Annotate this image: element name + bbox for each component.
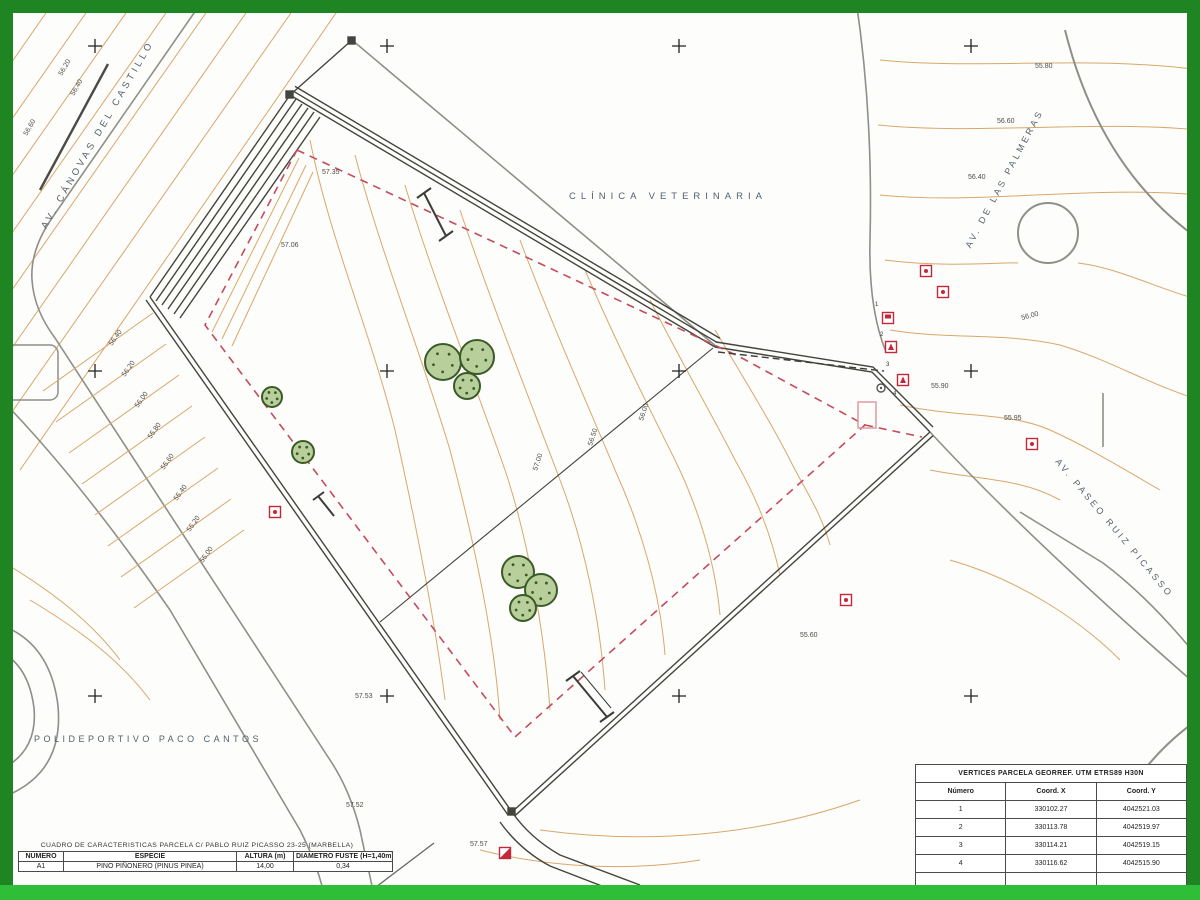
elevation-label: 57.06 bbox=[281, 242, 299, 249]
tree-texture-dot bbox=[467, 358, 470, 361]
tree bbox=[262, 387, 282, 407]
level-tick-label: 55.00 bbox=[199, 546, 215, 564]
grid-cross bbox=[964, 39, 978, 53]
table-header-cell: ESPECIE bbox=[64, 852, 237, 862]
parcel-walls-part bbox=[295, 86, 720, 338]
level-tick bbox=[108, 468, 218, 546]
dimension-marks bbox=[313, 188, 614, 722]
table-header-cell: Número bbox=[916, 783, 1006, 801]
level-tick-label: 55.20 bbox=[186, 515, 202, 533]
contour-lines-part bbox=[480, 850, 700, 867]
contour-lines-part bbox=[930, 470, 1060, 500]
tree-texture-dot bbox=[526, 601, 529, 604]
tree-canopy bbox=[425, 344, 461, 380]
level-tick-label: 55.40 bbox=[173, 484, 189, 502]
table-cell: 330113.78 bbox=[1006, 819, 1096, 837]
tree-texture-dot bbox=[512, 563, 515, 566]
table-cell: 330116.62 bbox=[1006, 855, 1096, 873]
tree-texture-dot bbox=[508, 573, 511, 576]
tree-texture-dot bbox=[470, 348, 473, 351]
contour-lines-part bbox=[1078, 263, 1200, 300]
elevation-label: 56.60 bbox=[23, 118, 38, 137]
green-bottom-strip bbox=[0, 885, 1200, 900]
level-tick-label: 55.80 bbox=[147, 422, 163, 440]
dot-symbol-icon bbox=[921, 266, 932, 277]
elevation-label: 55.90 bbox=[931, 383, 949, 390]
corner-marker bbox=[348, 37, 355, 44]
elevation-label: 57.52 bbox=[346, 802, 364, 809]
tree-texture-dot bbox=[481, 348, 484, 351]
vertex-number: 4 bbox=[893, 391, 897, 397]
tree-texture-dot bbox=[525, 574, 528, 577]
level-tick bbox=[82, 406, 192, 484]
table-cell: 1 bbox=[916, 801, 1006, 819]
contour-lines-part bbox=[0, 560, 120, 660]
level-tick-label: 56.40 bbox=[108, 329, 124, 347]
tree-texture-dot bbox=[470, 379, 473, 382]
elevation-label: 56.00 bbox=[1021, 311, 1040, 322]
roads-part bbox=[1020, 512, 1200, 660]
roads-part bbox=[32, 0, 375, 900]
parcel-walls-part bbox=[156, 99, 296, 301]
elevation-label: 57.53 bbox=[355, 693, 373, 700]
level-tick-label: 55.60 bbox=[160, 453, 176, 471]
elevation-label: 56.60 bbox=[997, 118, 1015, 125]
table-cell: 4 bbox=[916, 855, 1006, 873]
tree-texture-dot bbox=[432, 363, 435, 366]
elevation-label: 56.40 bbox=[70, 78, 85, 97]
tree-texture-dot bbox=[451, 364, 454, 367]
dot-symbol-icon-part bbox=[1030, 442, 1034, 446]
dot-symbol-icon-part bbox=[273, 510, 277, 514]
tree-texture-dot bbox=[475, 365, 478, 368]
grid-cross bbox=[88, 364, 102, 378]
tree-texture-dot bbox=[448, 353, 451, 356]
table-cell: 14,00 bbox=[237, 862, 294, 872]
table-cell: PINO PIÑONERO (PINUS PINEA) bbox=[64, 862, 237, 872]
parcel-boundary-red bbox=[205, 150, 922, 737]
tri-symbol-icon bbox=[898, 375, 909, 386]
tree-texture-dot bbox=[522, 564, 525, 567]
contour-lines-part bbox=[30, 600, 150, 700]
dimension-marks-part bbox=[318, 496, 334, 516]
tree-texture-dot bbox=[459, 387, 462, 390]
dot-symbol-icon bbox=[1027, 439, 1038, 450]
tree-texture-dot bbox=[305, 446, 308, 449]
slash-symbol-icon bbox=[500, 848, 511, 859]
tree-texture-dot bbox=[484, 359, 487, 362]
street-label: CLÍNICA VETERINARIA bbox=[569, 191, 767, 202]
characteristics-table: CUADRO DE CARACTERISTICAS PARCELA C/ PAB… bbox=[18, 842, 376, 872]
tree-texture-dot bbox=[301, 457, 304, 460]
table-cell: 4042519.15 bbox=[1096, 837, 1186, 855]
elevation-label: 57.00 bbox=[532, 453, 544, 472]
tree-canopy bbox=[292, 441, 314, 463]
parcel-walls-part bbox=[293, 91, 718, 343]
roundabout bbox=[1018, 203, 1078, 263]
flag-symbol-icon-part bbox=[885, 315, 891, 319]
characteristics-table-title: CUADRO DE CARACTERISTICAS PARCELA C/ PAB… bbox=[18, 842, 376, 849]
table-cell: A1 bbox=[19, 862, 64, 872]
tree-texture-dot bbox=[518, 601, 521, 604]
plan-sheet: 56.4056.2056.0055.8055.6055.4055.2055.00… bbox=[0, 0, 1200, 900]
elevation-label: 55.95 bbox=[1004, 415, 1022, 422]
tree-texture-dot bbox=[436, 352, 439, 355]
tree-texture-dot bbox=[441, 370, 444, 373]
vertices-table-title: VERTICES PARCELA GEORREF. UTM ETRS89 H30… bbox=[916, 765, 1187, 783]
elevation-label: 55.60 bbox=[800, 632, 818, 639]
roads-part bbox=[1065, 30, 1200, 240]
street-label: AV. PASEO RUIZ PICASSO bbox=[1053, 457, 1175, 600]
vertex-number: 1 bbox=[875, 302, 879, 308]
parcel-walls-part bbox=[515, 436, 933, 816]
tree-texture-dot bbox=[462, 379, 465, 382]
tree-texture-dot bbox=[465, 392, 468, 395]
tri-symbol-icon bbox=[886, 342, 897, 353]
table-cell: 4042521.03 bbox=[1096, 801, 1186, 819]
spot-level-ticks: 56.4056.2056.0055.8055.6055.4055.2055.00 bbox=[43, 313, 244, 608]
elevation-label: 56.50 bbox=[587, 428, 599, 447]
level-tick-label: 56.20 bbox=[121, 360, 137, 378]
level-tick-label: 56.00 bbox=[134, 391, 150, 409]
corner-marker bbox=[508, 808, 515, 815]
contour-lines-part bbox=[355, 155, 500, 720]
elevation-label: 56.40 bbox=[968, 174, 986, 181]
elevation-labels: 57.3557.0655.9055.9557.5357.5257.5755.80… bbox=[23, 58, 1053, 848]
tree-texture-dot bbox=[472, 387, 475, 390]
tree bbox=[425, 344, 461, 380]
characteristics-table-grid: NÚMEROESPECIEALTURA (m)DIAMETRO FUSTE (H… bbox=[18, 851, 393, 872]
tree-canopy bbox=[510, 595, 536, 621]
elevation-label: 57.35 bbox=[322, 169, 340, 176]
contour-lines-part bbox=[222, 165, 306, 339]
sports-track-inner bbox=[0, 648, 34, 770]
tree-canopy bbox=[454, 373, 480, 399]
parcel-walls-part bbox=[174, 112, 314, 314]
vertices-table: VERTICES PARCELA GEORREF. UTM ETRS89 H30… bbox=[915, 764, 1187, 891]
elevation-label: 56.00 bbox=[638, 403, 650, 422]
contour-lines-part bbox=[878, 125, 1200, 130]
vertex-number: 2 bbox=[880, 332, 884, 338]
tree-texture-dot bbox=[535, 581, 538, 584]
tree-texture-dot bbox=[265, 397, 268, 400]
dimension-marks-part bbox=[417, 188, 431, 198]
tree-texture-dot bbox=[515, 609, 518, 612]
parcel-boundary-red-part bbox=[865, 425, 922, 437]
grid-cross bbox=[964, 689, 978, 703]
parcel-walls-part bbox=[715, 347, 930, 432]
roads-part bbox=[0, 398, 325, 900]
parcel-walls-part bbox=[290, 40, 352, 95]
parcel-walls-part bbox=[512, 432, 930, 812]
table-cell: 0,34 bbox=[294, 862, 393, 872]
tree bbox=[510, 595, 536, 621]
elevation-label: 55.80 bbox=[1035, 63, 1053, 70]
grid-cross bbox=[380, 39, 394, 53]
parcel-walls-part bbox=[880, 387, 882, 389]
contour-lines-part bbox=[885, 260, 1018, 264]
grid-cross bbox=[964, 364, 978, 378]
contour-lines-part bbox=[20, 0, 345, 470]
buildings-part bbox=[858, 402, 876, 428]
dot-symbol-icon-part bbox=[844, 598, 848, 602]
table-cell: 4042515.90 bbox=[1096, 855, 1186, 873]
grid-cross bbox=[672, 689, 686, 703]
dot-symbol-icon-part bbox=[941, 290, 945, 294]
corner-marker bbox=[286, 91, 293, 98]
dot-symbol-icon bbox=[841, 595, 852, 606]
parcel-walls-part bbox=[168, 108, 308, 309]
dot-symbol-icon bbox=[938, 287, 949, 298]
tree-texture-dot bbox=[545, 582, 548, 585]
dimension-marks-part bbox=[313, 492, 324, 500]
dimension-marks-part bbox=[424, 193, 446, 236]
tree-texture-dot bbox=[268, 391, 271, 394]
street-label: POLIDEPORTIVO PACO CANTOS bbox=[34, 734, 262, 744]
tree-texture-dot bbox=[298, 446, 301, 449]
table-header-cell: DIAMETRO FUSTE (H=1,40m) bbox=[294, 852, 393, 862]
dimension-marks-part bbox=[566, 671, 580, 681]
flag-symbol-icon bbox=[883, 313, 894, 324]
contour-lines-part bbox=[0, 0, 215, 307]
tree-texture-dot bbox=[274, 391, 277, 394]
contour-lines-part bbox=[0, 0, 55, 79]
tree bbox=[460, 340, 494, 374]
table-header-cell: Coord. Y bbox=[1096, 783, 1186, 801]
level-tick bbox=[134, 530, 244, 608]
tree-texture-dot bbox=[296, 452, 299, 455]
grid-cross bbox=[380, 689, 394, 703]
tree bbox=[454, 373, 480, 399]
contour-lines-part bbox=[232, 172, 313, 346]
tree-texture-dot bbox=[516, 579, 519, 582]
contour-lines-part bbox=[0, 0, 175, 250]
table-cell: 3 bbox=[916, 837, 1006, 855]
dot-symbol-icon bbox=[270, 507, 281, 518]
contour-lines-part bbox=[950, 560, 1120, 660]
level-tick bbox=[95, 437, 205, 515]
elevation-label: 57.57 bbox=[470, 841, 488, 848]
grid-cross bbox=[88, 689, 102, 703]
tree-texture-dot bbox=[548, 592, 551, 595]
roads-part bbox=[856, 0, 886, 352]
level-tick bbox=[121, 499, 231, 577]
tree bbox=[292, 441, 314, 463]
table-header-cell: NÚMERO bbox=[19, 852, 64, 862]
tree-texture-dot bbox=[276, 397, 279, 400]
parcel-walls-part bbox=[512, 812, 640, 885]
table-cell: 2 bbox=[916, 819, 1006, 837]
vertex-number: 3 bbox=[886, 362, 890, 368]
vertices-table-grid: VERTICES PARCELA GEORREF. UTM ETRS89 H30… bbox=[915, 764, 1187, 891]
contour-lines-part bbox=[585, 270, 720, 615]
tree-canopy bbox=[460, 340, 494, 374]
elevation-label: 56.20 bbox=[58, 58, 73, 77]
tree-texture-dot bbox=[539, 597, 542, 600]
level-tick bbox=[56, 344, 166, 422]
tree-canopy bbox=[262, 387, 282, 407]
contour-lines-part bbox=[540, 800, 860, 837]
table-cell: 330102.27 bbox=[1006, 801, 1096, 819]
table-header-cell: ALTURA (m) bbox=[237, 852, 294, 862]
tree-texture-dot bbox=[270, 401, 273, 404]
grid-cross bbox=[380, 364, 394, 378]
table-cell: 4042519.97 bbox=[1096, 819, 1186, 837]
tree-texture-dot bbox=[521, 614, 524, 617]
trees bbox=[262, 340, 557, 621]
table-cell: 330114.21 bbox=[1006, 837, 1096, 855]
parcel-walls-part bbox=[180, 117, 320, 318]
tree-texture-dot bbox=[531, 591, 534, 594]
dot-symbol-icon-part bbox=[924, 269, 928, 273]
sports-track-outline bbox=[0, 622, 59, 796]
dimension-marks-part bbox=[439, 231, 453, 241]
table-header-cell: Coord. X bbox=[1006, 783, 1096, 801]
grid-cross bbox=[672, 364, 686, 378]
level-tick bbox=[43, 313, 153, 391]
grid-cross bbox=[672, 39, 686, 53]
street-name-labels: AV. CÁNOVAS DEL CASTILLOCLÍNICA VETERINA… bbox=[34, 39, 1175, 744]
street-label: AV. CÁNOVAS DEL CASTILLO bbox=[39, 39, 156, 231]
level-tick bbox=[69, 375, 179, 453]
parcel-walls-part bbox=[290, 95, 715, 347]
tree-texture-dot bbox=[528, 609, 531, 612]
tree-texture-dot bbox=[307, 453, 310, 456]
contour-lines-part bbox=[405, 185, 550, 710]
